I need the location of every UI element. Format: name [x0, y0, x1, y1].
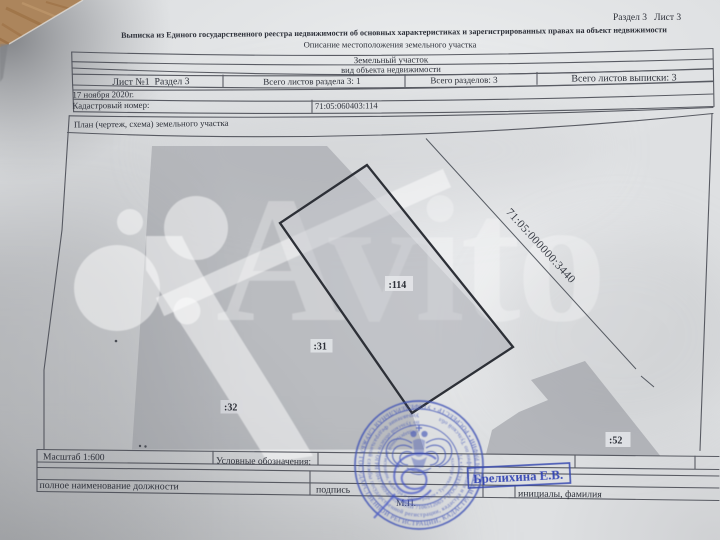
svg-text:71:05:060403:114: 71:05:060403:114	[315, 100, 379, 111]
svg-text:Масштаб 1:600: Масштаб 1:600	[43, 452, 105, 464]
svg-text:Раздел 3 Лист 3: Раздел 3 Лист 3	[613, 13, 681, 23]
svg-text:Кадастровый номер:: Кадастровый номер:	[72, 100, 149, 111]
svg-text:вид объекта недвижимости: вид объекта недвижимости	[341, 64, 441, 75]
svg-text:Всего разделов: 3: Всего разделов: 3	[430, 75, 498, 86]
svg-text:Всего листов выписки: 3: Всего листов выписки: 3	[571, 72, 676, 84]
svg-text::114: :114	[389, 280, 407, 291]
svg-text::52: :52	[609, 436, 622, 447]
svg-text:План (чертеж, схема) земельног: План (чертеж, схема) земельного участка	[74, 118, 229, 130]
svg-text:Лист №1 Раздел 3: Лист №1 Раздел 3	[112, 76, 189, 88]
svg-text:Описание местоположения земель: Описание местоположения земельного участ…	[304, 40, 477, 50]
svg-text:17 ноября 2020г.: 17 ноября 2020г.	[72, 89, 134, 100]
svg-text:Условные обозначения:: Условные обозначения:	[216, 456, 311, 468]
svg-text:инициалы, фамилия: инициалы, фамилия	[518, 489, 602, 501]
svg-text:Всего листов раздела 3: 1: Всего листов раздела 3: 1	[263, 76, 360, 87]
svg-text:полное наименование должности: полное наименование должности	[39, 480, 179, 492]
svg-text:подпись: подпись	[316, 485, 351, 496]
svg-text::31: :31	[314, 342, 327, 353]
svg-text::32: :32	[224, 403, 237, 414]
